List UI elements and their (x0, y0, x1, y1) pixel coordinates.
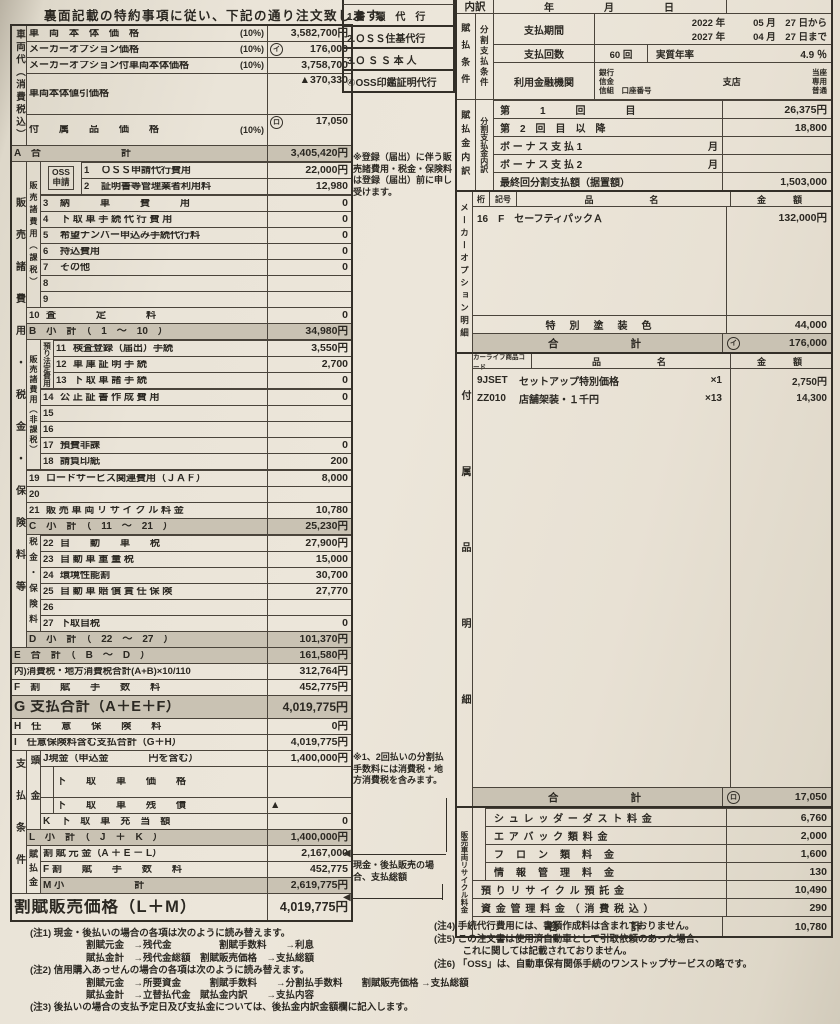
tax-strip-label: 税金・保険料 (27, 535, 41, 631)
header-note: 裏面記載の特約事項に従い、下記の通り注文致します。 (44, 5, 393, 24)
recycle-strip: 販売車両リサイクル料金 (457, 808, 473, 936)
subtotal-b-row: B 小 計 （ 1 ～ 10 ） 34,980円 (27, 323, 351, 339)
maker-option-price-row: メーカーオプション価格 (10%) イ176,000 (27, 41, 351, 57)
subtotal-m-row: M 小 計 2,619,775円 (41, 877, 351, 893)
installment-breakdown-group: 賦払金内訳 分割支払金内訳 第 1 回 目 26,375円 第 2 回 目 以 … (457, 99, 831, 190)
fee-row: 21 販 売 車 両 リ サ イ ク ル 料 金 10,780 (27, 502, 351, 518)
conditions-strip-1: 賦払条件 (457, 14, 476, 99)
recycle-inner-group: シ ュ レ ッ ダ ー ダ ス ト 料 金 6,760 エ ア バ ッ ク 類 … (473, 808, 831, 880)
fee-row: 6 持込費用 0 (41, 243, 351, 259)
accessory-table: 付属品明細 カーライフ商品コード 品 名 金 額 9JSET セットアップ特別価… (455, 352, 833, 808)
maker-option-strip: メーカーオプション明細 (457, 192, 473, 352)
list-item: 3.Ｏ Ｓ Ｓ 本 人 (342, 49, 455, 71)
installment-group: 賦払金 割 賦 元 金（A ＋ E － L） 2,167,000 F 割 賦 手… (27, 845, 351, 893)
connector-line (352, 898, 443, 899)
fee-row: 4 下 取 車 手 続 代 行 費 用 0 (41, 211, 351, 227)
installment-fee-row: F 割 賦 手 数 料 452,775円 (12, 679, 351, 695)
fee-row: 9 (41, 291, 351, 307)
installment-row: ボ ー ナ ス 支 払 2 月 (494, 154, 831, 172)
recycle-row: 情 報 管 理 料 金 130 (486, 862, 831, 880)
fee-row: 7 その他 0 (41, 259, 351, 275)
accessory-price-row: 付 属 品 価 格 (10%) ロ17,050 (27, 114, 351, 145)
consumption-tax-row: 内)消費税・地方消費税合計(A+B)×10/110 312,764円 (12, 663, 351, 679)
installment-row: 第 2 回 目 以 降 18,800 (494, 118, 831, 136)
accessory-strip: 付属品明細 (457, 354, 473, 806)
fee-row: 2 証明書等管理業者利用料 12,980 (82, 178, 351, 194)
vehicle-discount-row: 車両本体値引価格 ▲370,330 (27, 73, 351, 114)
payment-terms-section: 支払条件 頭金 J現金（申込金 円を含む） 1,400,000円 下 取 車 価… (12, 750, 351, 893)
fee-row: 23 自 動 車 重 量 税 15,000 (41, 551, 351, 567)
circle-ro-mark: ロ (270, 116, 283, 129)
right-detail-block: 内訳 年 月 日 賦払条件 分割支払条件 支払期間 2022 年05 月 27 … (455, 0, 833, 938)
down-payment-group: 頭金 J現金（申込金 円を含む） 1,400,000円 下 取 車 価 格 (27, 751, 351, 829)
installment-conditions-table: 内訳 年 月 日 賦払条件 分割支払条件 支払期間 2022 年05 月 27 … (455, 0, 833, 192)
down-payment-strip-label: 頭金 (27, 751, 41, 829)
payment-period-row: 支払期間 2022 年05 月 27 日から 2027 年04 月 27 日まで (494, 14, 831, 44)
connector-line (446, 798, 447, 852)
maker-option-header: 桁 記号 品 名 金 額 (473, 192, 831, 206)
breakdown-strip-2: 分割支払金内訳 (476, 100, 494, 190)
nontaxable-strip-label: 販売諸費用（非課税） (27, 340, 41, 469)
voluntary-insurance-row: H 任 意 保 険 料 0円 (12, 718, 351, 734)
fee-row: 13 下 取 車 諸 手 続 0 (54, 372, 351, 388)
cash-row: J現金（申込金 円を含む） 1,400,000円 (41, 751, 351, 766)
fee-row: 14 公 正 証 書 作 成 費 用 0 (41, 389, 351, 405)
payment-count-row: 支払回数 60 回 実質年率 4.9 ％ (494, 44, 831, 62)
appraisal-fee-row: 10 査 定 料 0 (27, 307, 351, 323)
circle-i-mark: イ (270, 43, 283, 56)
accessory-amount: 14,300 (731, 389, 831, 407)
breakdown-label: 内訳 (457, 0, 494, 13)
accessory-body: 9JSET セットアップ特別価格 ×1 ZZ010 店舗架装・１千円 ×13 (473, 368, 831, 787)
recycle-row: フ ロ ン 類 料 金 1,600 (486, 844, 831, 862)
fee-row: 27 下取自税 0 (41, 615, 351, 631)
conditions-group: 賦払条件 分割支払条件 支払期間 2022 年05 月 27 日から 2027 … (457, 13, 831, 99)
fee-row: 5 希望ナンバー申込み手続代行料 0 (41, 227, 351, 243)
special-paint-row: 特 別 塗 装 色 44,000 (473, 315, 831, 333)
fee-row: 17 預費非課 0 (41, 437, 351, 453)
fee-row: 8 (41, 275, 351, 291)
breakdown-date-row: 内訳 年 月 日 (457, 0, 831, 13)
accessory-row: 9JSET セットアップ特別価格 ×1 (473, 371, 730, 389)
fee-row: 22 自 動 車 税 27,900円 (41, 535, 351, 551)
footnote-line: (注4) 手続代行費用には、書類作成料は含まれておりません。 (434, 921, 834, 934)
total-e-row: E 合 計 （ B ～ D ） 161,580円 (12, 647, 351, 663)
fee-row: 3 納 車 費 用 0 (41, 195, 351, 211)
total-a-row: A 合 計 3,405,420円 (12, 145, 351, 161)
maker-option-table: メーカーオプション明細 桁 記号 品 名 金 額 16FセーフティパックＡ 13… (455, 190, 833, 354)
total-with-insurance-row: I 任意保険料含む支払合計（G＋H） 4,019,775円 (12, 734, 351, 750)
tax-insurance-group: 税金・保険料 22 自 動 車 税 27,900円 23 自 動 車 重 量 税 (27, 534, 351, 631)
accessory-row: ZZ010 店舗架装・１千円 ×13 (473, 389, 730, 407)
maker-option-body: 16FセーフティパックＡ 132,000円 (473, 206, 831, 315)
fee-row: 15 (41, 405, 351, 421)
accessory-amount: 2,750円 (731, 371, 831, 389)
footnotes-1-3: (注1) 現金・後払いの場合の各項は次のように読み替えます。 割賦元金 →残代金… (30, 928, 470, 1015)
breakdown-strip-1: 賦払金内訳 (457, 100, 476, 190)
recycle-fee-table: 販売車両リサイクル料金 シ ュ レ ッ ダ ー ダ ス ト 料 金 6,760 … (455, 806, 833, 938)
cash-sale-note: 現金・後払販売の場合、支払総額 (353, 860, 451, 883)
footnote-line: これに関しては記載されておりません。 (434, 946, 834, 959)
fee-row: 11 検査登録（届出）手続 3,550円 (54, 340, 351, 356)
vehicle-strip-label: 車両代（消費税込） (12, 26, 27, 145)
payment-strip-label: 支払条件 (12, 751, 27, 893)
maker-option-total-row: 合 計 イ176,000 (473, 333, 831, 352)
taxable-group: 販売諸費用（課税） OSS 申請 1 ＯＳＳ申請代行費用 22,000円 (27, 162, 351, 307)
arrow-left-icon: ◀ (343, 849, 351, 859)
nontaxable-group: 販売諸費用（非課税） 預り法定費用 11 検査登録（届出）手続 3,550円 (27, 339, 351, 469)
fee-row: 20 (27, 486, 351, 502)
vehicle-price-section: 車両代（消費税込） 車 両 本 体 価 格 (10%) 3,582,700円 メ… (12, 26, 351, 145)
installment-strip-label: 賦払金 (27, 846, 41, 893)
installment-row: 最終回分割支払額（据置額） 1,503,000 (494, 172, 831, 190)
trade-in-debt-row: 下 取 車 残 債 ▲ (41, 797, 351, 813)
footnotes-4-6: (注4) 手続代行費用には、書類作成料は含まれておりません。 (注5) この注文… (434, 921, 834, 971)
sales-strip-label: 販売諸費用・税金・保険料等 (12, 162, 27, 647)
order-form-photo: { "page": { "header_note": "裏面記載の特約事項に従い… (0, 0, 840, 1024)
footnote-line: (注5) この注文書は使用済自動車として引取依頼のあった場合、 (434, 934, 834, 947)
fee-row: 24 環境性能割 30,700 (41, 567, 351, 583)
fee-row: 26 (41, 599, 351, 615)
vehicle-with-option-price-row: メーカーオプション付車両本体価格 (10%) 3,758,700 (27, 57, 351, 73)
installment-sale-price-row: 割賦販売価格（L＋M） 4,019,775円 (12, 893, 351, 920)
subtotal-l-row: L 小 計 （ J ＋ K ） 1,400,000円 (27, 829, 351, 845)
subtotal-d-row: D 小 計 （ 22 ～ 27 ） 101,370円 (27, 631, 351, 647)
recycle-row: エ ア バ ッ ク 類 料 金 2,000 (486, 826, 831, 844)
split-payment-note: ※1、2回払いの分割払手数料には消費税・地方消費税を含みます。 (353, 752, 449, 787)
installment-row: ボ ー ナ ス 支 払 1 月 (494, 136, 831, 154)
procedure-list: 1.書 類 代 行 2.ＯＳＳ住基代行 3.Ｏ Ｓ Ｓ 本 人 ④OSS印鑑証明… (342, 0, 455, 93)
taxable-strip-label: 販売諸費用（課税） (27, 162, 41, 307)
circle-i-mark: イ (727, 337, 740, 350)
recycle-row: シ ュ レ ッ ダ ー ダ ス ト 料 金 6,760 (486, 808, 831, 826)
fund-management-row: 資 金 管 理 料 金 （ 消 費 税 込 ） 290 (473, 898, 831, 916)
conditions-strip-2: 分割支払条件 (476, 14, 494, 99)
subtotal-c-row: C 小 計 （ 11 ～ 21 ） 25,230円 (27, 518, 351, 534)
trade-in-price-row: 下 取 車 価 格 (41, 766, 351, 797)
oss-application-box: OSS 申請 (41, 162, 82, 194)
fee-row: 25 自 動 車 賠 償 責 任 保 険 27,770 (41, 583, 351, 599)
fee-row: 18 請負印紙 200 (41, 453, 351, 469)
list-item: 1.書 類 代 行 (342, 5, 455, 27)
installment-row: 第 1 回 目 26,375円 (494, 100, 831, 118)
grand-total-g-row: G 支払合計（A＋E＋F） 4,019,775円 (12, 695, 351, 718)
fee-row: 19 ロードサービス関連費用（ＪＡＦ） 8,000 (27, 470, 351, 486)
installment-fee-row2: F 割 賦 手 数 料 452,775 (41, 861, 351, 877)
accessory-total-row: 合 計 ロ17,050 (473, 787, 831, 806)
installment-principal-row: 割 賦 元 金（A ＋ E － L） 2,167,000 (41, 846, 351, 861)
trade-in-allocation-row: K 下 取 車 充 当 額 0 (41, 813, 351, 829)
fee-row: 12 車 庫 証 明 手 続 2,700 (54, 356, 351, 372)
vehicle-base-price-row: 車 両 本 体 価 格 (10%) 3,582,700円 (27, 26, 351, 41)
financial-institution-row: 利用金融機関 銀行信金信組 口座番号 支店 当座専用普通 (494, 62, 831, 99)
recycle-deposit-row: 預 り リ サ イ ク ル 預 託 金 10,490 (473, 880, 831, 898)
fee-row: 16 (41, 421, 351, 437)
sales-expenses-section: 販売諸費用・税金・保険料等 販売諸費用（課税） OSS 申請 1 ＯＳＳ申請代行… (12, 161, 351, 647)
footnote-line: (注6) 「OSS」は、自動車保有関係手続のワンストップサービスの略です。 (434, 959, 834, 972)
deposit-legal-fee-group: 預り法定費用 11 検査登録（届出）手続 3,550円 (41, 340, 351, 388)
list-item: ④OSS印鑑証明代行 (342, 71, 455, 93)
connector-line (352, 854, 446, 855)
registration-note: ※登録（届出）に伴う販売諸費用・税金・保険料は登録（届出）前に申し受けます。 (353, 152, 453, 198)
list-item: 2.ＯＳＳ住基代行 (342, 27, 455, 49)
oss-group: OSS 申請 1 ＯＳＳ申請代行費用 22,000円 (41, 162, 351, 194)
arrow-left-icon: ◀ (343, 893, 351, 903)
fee-row: 1 ＯＳＳ申請代行費用 22,000円 (82, 162, 351, 178)
deposit-strip-label: 預り法定費用 (41, 340, 54, 388)
accessory-header: カーライフ商品コード 品 名 金 額 (473, 354, 831, 368)
circle-ro-mark: ロ (727, 791, 740, 804)
main-price-table: 車両代（消費税込） 車 両 本 体 価 格 (10%) 3,582,700円 メ… (10, 24, 353, 922)
